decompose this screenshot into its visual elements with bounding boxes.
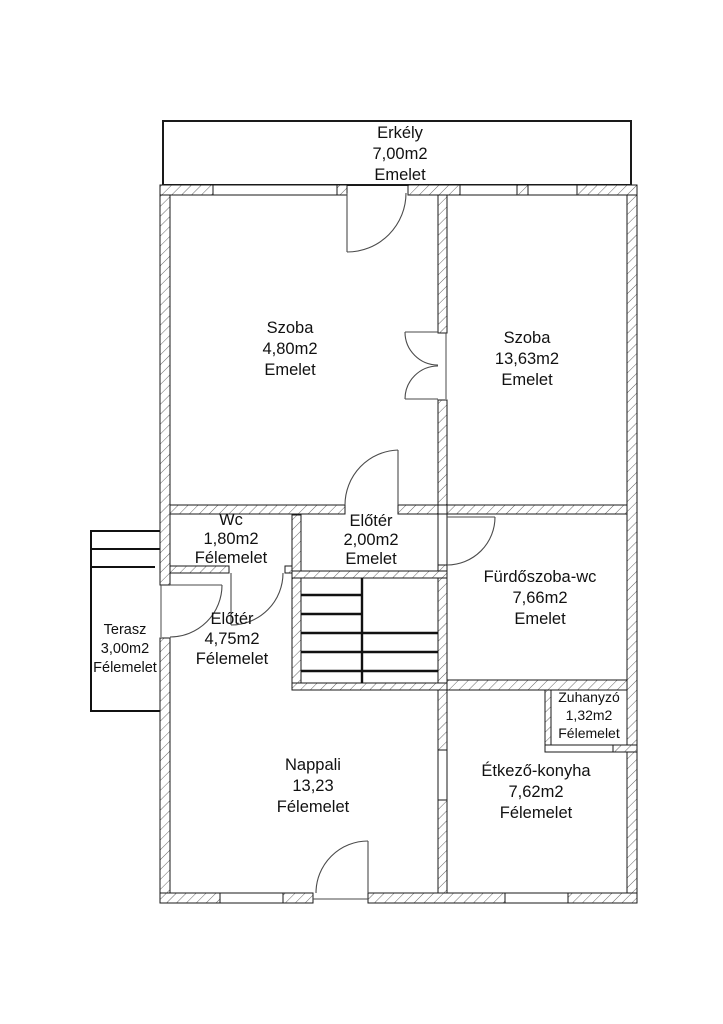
door-opening [545, 745, 613, 752]
room-label-szoba-left: Szoba 4,80m2 Emelet [262, 318, 317, 381]
floor-plan: Erkély 7,00m2 Emelet Szoba 4,80m2 Emelet… [0, 0, 723, 1024]
window [505, 893, 568, 903]
door-arc [405, 332, 438, 365]
wall-segment [292, 571, 447, 578]
wall-segment [447, 505, 627, 514]
room-area: 7,66m2 [484, 588, 597, 609]
window [213, 185, 337, 195]
room-area: 7,62m2 [481, 782, 590, 803]
window [528, 185, 577, 195]
room-label-zuhanyzo: Zuhanyzó 1,32m2 Félemelet [558, 688, 619, 742]
wall-segment [160, 185, 213, 195]
room-name: Fürdőszoba-wc [484, 567, 597, 588]
room-area: 7,00m2 [372, 144, 427, 165]
room-label-szoba-right: Szoba 13,63m2 Emelet [495, 328, 559, 391]
room-label-erkely: Erkély 7,00m2 Emelet [372, 123, 427, 186]
room-label-terasz: Terasz 3,00m2 Félemelet [93, 621, 157, 678]
room-label-eloter-upper: Előtér 2,00m2 Emelet [343, 512, 398, 569]
wall-segment [337, 185, 347, 195]
door-arc [405, 366, 438, 399]
room-level: Félemelet [481, 803, 590, 824]
wall-segment [517, 185, 528, 195]
room-area: 4,80m2 [262, 339, 317, 360]
window [460, 185, 517, 195]
wall-segment [292, 515, 301, 690]
room-level: Félemelet [196, 649, 268, 669]
door-arc [347, 193, 406, 252]
room-name: Erkély [372, 123, 427, 144]
room-label-nappali: Nappali 13,23 Félemelet [277, 755, 349, 818]
door-opening [438, 514, 447, 565]
wall-segment [160, 638, 170, 903]
room-level: Félemelet [558, 724, 619, 742]
room-area: 13,63m2 [495, 349, 559, 370]
wall-segment [160, 893, 220, 903]
wall-segment [613, 745, 637, 752]
room-name: Szoba [262, 318, 317, 339]
room-name: Nappali [277, 755, 349, 776]
room-area: 1,80m2 [195, 530, 267, 549]
wall-segment [568, 893, 637, 903]
room-name: Előtér [196, 609, 268, 629]
room-area: 3,00m2 [93, 640, 157, 659]
room-level: Emelet [262, 360, 317, 381]
room-area: 1,32m2 [558, 706, 619, 724]
door-arc [447, 517, 495, 565]
wall-segment [438, 195, 447, 333]
room-label-wc: Wc 1,80m2 Félemelet [195, 511, 267, 568]
door-arc [345, 450, 398, 505]
room-label-eloter-lower: Előtér 4,75m2 Félemelet [196, 609, 268, 669]
wall-segment [438, 565, 447, 750]
room-level: Emelet [372, 165, 427, 186]
room-level: Emelet [343, 550, 398, 569]
room-area: 2,00m2 [343, 531, 398, 550]
room-name: Zuhanyzó [558, 688, 619, 706]
wall-segment [438, 800, 447, 893]
room-label-etkezo: Étkező-konyha 7,62m2 Félemelet [481, 761, 590, 824]
room-level: Félemelet [93, 659, 157, 678]
room-name: Terasz [93, 621, 157, 640]
staircase [301, 578, 438, 683]
room-area: 4,75m2 [196, 629, 268, 649]
room-name: Szoba [495, 328, 559, 349]
room-label-furdoszoba: Fürdőszoba-wc 7,66m2 Emelet [484, 567, 597, 630]
room-level: Emelet [484, 609, 597, 630]
wall-segment [438, 400, 447, 505]
door-arc [316, 841, 368, 893]
wall-segment [545, 690, 551, 752]
wall-segment [292, 683, 447, 690]
wall-segment [408, 185, 460, 195]
wall-segment [368, 893, 505, 903]
room-area: 13,23 [277, 776, 349, 797]
door-opening [438, 750, 447, 800]
room-level: Félemelet [277, 797, 349, 818]
wall-segment [160, 185, 170, 585]
room-name: Étkező-konyha [481, 761, 590, 782]
room-level: Emelet [495, 370, 559, 391]
room-name: Előtér [343, 512, 398, 531]
room-name: Wc [195, 511, 267, 530]
wall-segment [398, 505, 438, 514]
wall-segment [627, 185, 637, 903]
window [220, 893, 283, 903]
room-level: Félemelet [195, 549, 267, 568]
wall-segment [283, 893, 313, 903]
wall-segment [577, 185, 637, 195]
